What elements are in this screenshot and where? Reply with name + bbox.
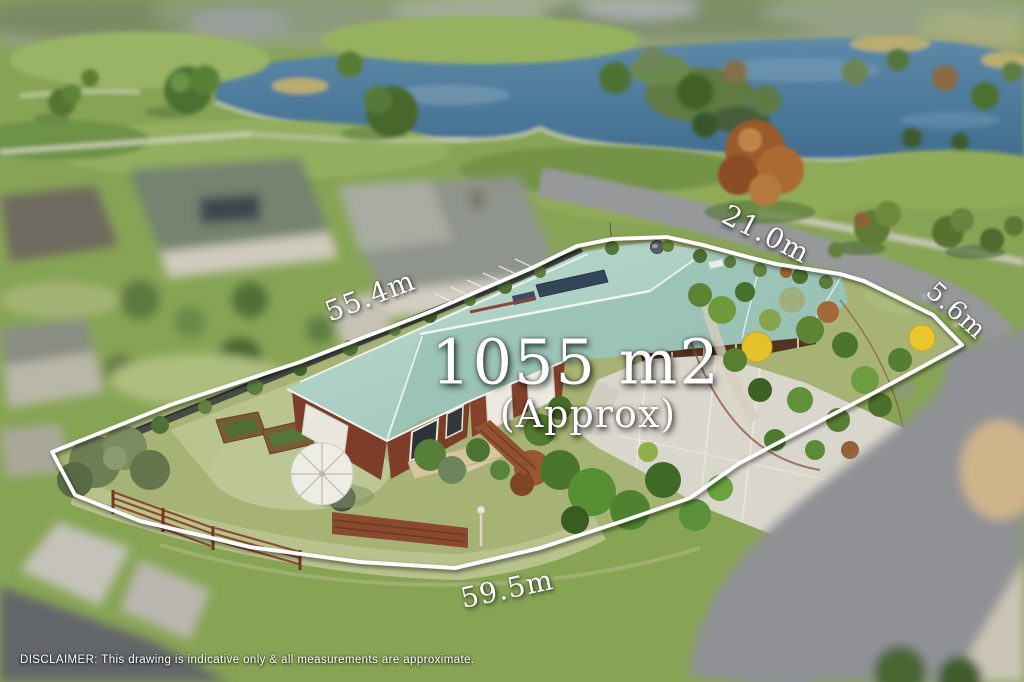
land-area-qualifier: (Approx) [500,392,676,436]
land-area-label: 1055 m2 [431,326,721,399]
aerial-property-photo: 55.4m 21.0m 5.6m 59.5m 1055 m2 (Approx) … [0,0,1024,682]
disclaimer-text: DISCLAIMER: This drawing is indicative o… [20,654,475,666]
